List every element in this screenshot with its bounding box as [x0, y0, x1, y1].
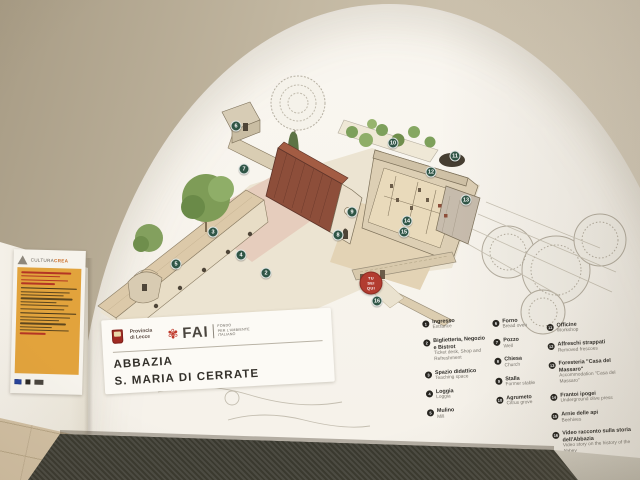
tower: [222, 102, 260, 143]
legend-label-en: Loggia: [436, 395, 454, 402]
legend-number-bullet: 9: [495, 377, 502, 384]
legend-item: 5MulinoMill: [427, 405, 494, 421]
fai-divider: [212, 324, 214, 338]
legend-texts: OfficineWorkshop: [556, 322, 578, 335]
map-marker: 2: [261, 268, 272, 279]
legend-texts: Foresteria "Casa del Massaro"Accommodati…: [558, 357, 635, 385]
legend-number-bullet: 8: [494, 358, 501, 365]
legend-label-en: Entrance: [432, 324, 455, 331]
poster-text-line: [21, 294, 64, 296]
poster-text-line: [21, 287, 77, 289]
legend-number-bullet: 2: [423, 340, 430, 347]
you-are-here-text: QUI: [367, 286, 375, 291]
legend-label-en: Mill: [437, 414, 455, 421]
poster-text-line: [20, 319, 59, 321]
cultura-crea-wordmark: CULTURACREA: [31, 257, 69, 263]
poster-text-line: [20, 329, 69, 331]
poster-text-line: [20, 312, 76, 314]
legend-label-en: Underground olive press: [560, 396, 612, 404]
legend-label-en: Accommodation "Casa del Massaro": [559, 370, 635, 385]
photo-scene: 12345678910111213141516 TUSEIQUI Provinc…: [0, 0, 640, 480]
map-marker: 5: [171, 259, 182, 270]
fai-subtext: FONDO PER L'AMBIENTE ITALIANO: [217, 322, 250, 337]
legend-label-en: Teaching space: [435, 374, 477, 382]
provincia-di-lecce-crest-icon: [112, 329, 124, 344]
legend-texts: MulinoMill: [437, 407, 455, 420]
poster-body: [15, 267, 82, 375]
fai-logo: ✾ FAI FONDO PER L'AMBIENTE ITALIANO: [167, 321, 250, 343]
legend-item: 1IngressoEntrance: [422, 316, 489, 332]
legend-label-en: Ticket desk, Shop and Refreshment: [434, 348, 491, 362]
legend-item: 2Biglietteria, Negozio e BistrotTicket d…: [423, 335, 490, 363]
legend-label-en: Citrus grove: [507, 400, 533, 407]
legend-number-bullet: 11: [547, 324, 554, 331]
poster-text-line: [20, 333, 46, 335]
poster-text-line: [21, 283, 55, 285]
legend-column: 1IngressoEntrance2Biglietteria, Negozio …: [422, 316, 494, 428]
poster-text-line: [21, 301, 57, 303]
map-marker: 9: [347, 207, 358, 218]
map-marker: 15: [399, 227, 410, 238]
map-marker: 16: [372, 296, 383, 307]
poster-text-line: [21, 279, 68, 282]
mill-hut: [128, 269, 162, 303]
legend-item: 3Spazio didatticoTeaching space: [425, 367, 492, 383]
poster-text-line: [21, 275, 60, 278]
legend-label-en: Workshop: [557, 328, 579, 335]
poster-footer-logos: [14, 376, 78, 388]
poster-text-line: [21, 298, 73, 301]
legend-number-bullet: 5: [427, 409, 434, 416]
legend-number-bullet: 4: [426, 390, 433, 397]
legend-label-en: Bread oven: [503, 324, 528, 331]
legend-number-bullet: 12: [548, 343, 555, 350]
legend-number-bullet: 15: [551, 413, 558, 420]
map-marker: 14: [402, 216, 413, 227]
legend-texts: ChiesaChurch: [504, 356, 522, 369]
legend-item: 13Foresteria "Casa del Massaro"Accommoda…: [548, 357, 635, 386]
legend-item: 9StallaFormer stable: [495, 374, 556, 389]
fai-emblem-icon: ✾: [167, 327, 179, 341]
legend-texts: Arnie delle apiBeehives: [561, 410, 598, 424]
map-marker: 8: [333, 230, 344, 241]
map-marker: 11: [450, 151, 461, 162]
legend-texts: PozzoWell: [503, 337, 519, 350]
legend-texts: StallaFormer stable: [505, 375, 535, 389]
legend-label-en: Former stable: [506, 381, 536, 388]
poster-text-line: [20, 316, 70, 319]
legend-item: 7PozzoWell: [493, 335, 554, 350]
provincia-label: Provincia di Lecce: [130, 329, 153, 342]
logo-row: Provincia di Lecce ✾ FAI FONDO PER L'AMB…: [111, 313, 322, 349]
cultura-crea-logo: CULTURACREA: [17, 253, 81, 267]
eu-flag-icon: [14, 379, 21, 384]
legend-texts: Affreschi strappatiRemoved frescoes: [557, 339, 605, 354]
legend-number-bullet: 7: [493, 339, 500, 346]
poster-text-line: [21, 291, 70, 293]
legend-number-bullet: 13: [549, 362, 556, 369]
legend-texts: Spazio didatticoTeaching space: [435, 368, 477, 382]
legend-item: 15Arnie delle apiBeehives: [551, 408, 638, 425]
map-marker: 4: [236, 250, 247, 261]
you-are-here-badge: TUSEIQUI: [360, 272, 383, 295]
cultura-crea-triangle-icon: [18, 255, 28, 264]
legend-label-en: Well: [504, 343, 520, 350]
footer-logo2-icon: [34, 379, 43, 384]
legend-item: 12Affreschi strappatiRemoved frescoes: [547, 338, 634, 355]
map-marker: 12: [426, 167, 437, 178]
legend-texts: Frantoi ipogeiUnderground olive press: [560, 390, 613, 405]
map-marker: 7: [239, 164, 250, 175]
legend-item: 8ChiesaChurch: [494, 354, 555, 369]
legend-texts: IngressoEntrance: [432, 318, 455, 331]
abbey-title: ABBAZIA S. MARIA DI CERRATE: [113, 345, 325, 390]
legend-texts: Biglietteria, Negozio e BistrotTicket de…: [433, 335, 490, 362]
legend-item: 11OfficineWorkshop: [546, 319, 633, 336]
legend-number-bullet: 14: [550, 394, 557, 401]
poster-text-line: [20, 323, 66, 325]
title-panel: Provincia di Lecce ✾ FAI FONDO PER L'AMB…: [101, 308, 335, 395]
legend-number-bullet: 1: [422, 320, 429, 327]
legend-item: 6FornoBread oven: [492, 316, 553, 331]
legend-item: 14Frantoi ipogeiUnderground olive press: [550, 389, 637, 406]
poster-text-line: [21, 271, 71, 274]
legend-number-bullet: 16: [552, 432, 559, 439]
legend-number-bullet: 10: [496, 397, 503, 404]
legend-label-en: Church: [505, 362, 523, 369]
footer-logo-icon: [25, 379, 30, 384]
legend-texts: AgrumetoCitrus grove: [506, 394, 532, 408]
legend-item: 4LoggiaLoggia: [426, 386, 493, 402]
map-marker: 6: [231, 121, 242, 132]
cultura-crea-poster: CULTURACREA: [10, 249, 86, 395]
map-marker: 3: [208, 227, 219, 238]
legend-item: 10AgrumetoCitrus grove: [496, 393, 557, 408]
legend-number-bullet: 6: [492, 320, 499, 327]
legend-texts: Video racconto sulla storia dell'Abbazia…: [562, 427, 639, 455]
legend-label-en: Beehives: [561, 416, 598, 424]
poster-text-line: [20, 326, 52, 328]
map-marker: 10: [388, 138, 399, 149]
legend-number-bullet: 3: [425, 371, 432, 378]
poster-text-line: [20, 308, 64, 310]
legend-column: 11OfficineWorkshop12Affreschi strappatiR…: [546, 319, 639, 463]
legend-texts: LoggiaLoggia: [436, 388, 454, 401]
poster-text-line: [20, 305, 68, 307]
legend-texts: FornoBread oven: [502, 317, 527, 331]
fai-abbr: FAI: [182, 323, 209, 341]
map-marker: 13: [461, 195, 472, 206]
legend-label-it: Mulino: [437, 407, 455, 414]
